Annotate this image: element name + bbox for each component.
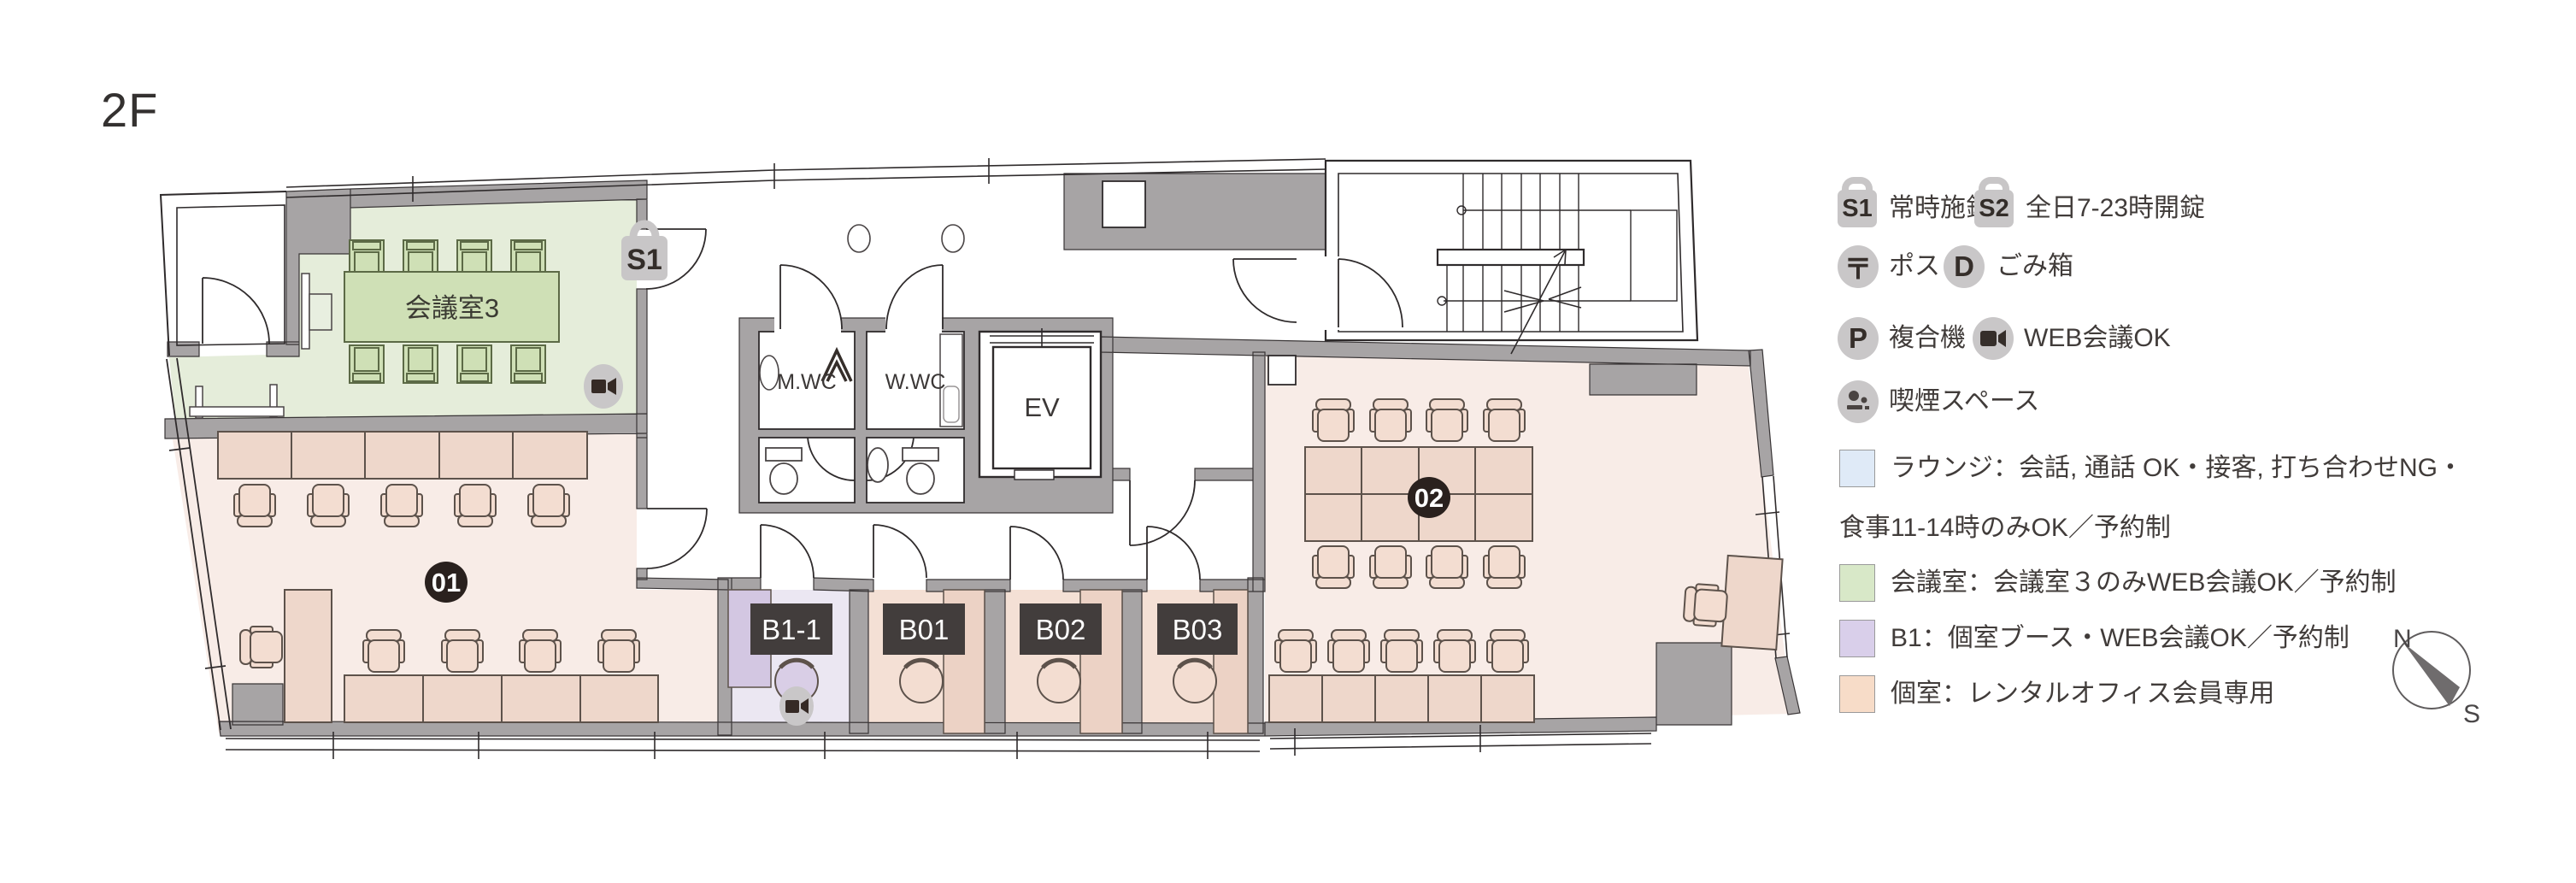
compass: N S (2378, 611, 2532, 731)
wwc-label: W.WC (885, 370, 946, 394)
compass-n: N (2393, 625, 2412, 653)
booth-b01-label: B01 (899, 614, 950, 645)
room01-badge: 01 (425, 562, 468, 603)
legend-zone-private: 個室：レンタルオフィス会員専用 (1839, 674, 2274, 715)
stairwell (1326, 161, 1697, 354)
elevator: EV (990, 328, 1094, 480)
corridor-basin-1 (848, 225, 870, 252)
legend-zone-meeting: 会議室：会議室３のみWEB会議OK／予約制 (1839, 562, 2397, 603)
lock-icon: S1 (1838, 190, 1877, 227)
legend-lock-s2: S2 全日7-23時開錠 (1974, 176, 2205, 229)
vestibule (161, 191, 286, 356)
web-camera-icon (584, 364, 623, 409)
compass-needle (2403, 643, 2460, 706)
trash-icon: D (1944, 245, 1985, 288)
meeting-whiteboard (302, 274, 309, 349)
room01-door (647, 509, 707, 568)
floor-plan: 会議室3 S1 01 (0, 0, 1829, 883)
room02-badge: 02 (1408, 477, 1450, 518)
legend-zone-lounge: ラウンジ：会話, 通話 OK・接客, 打ち合わせNG・ (1839, 448, 2463, 489)
booth-b03-door (1147, 527, 1200, 580)
hall-door (1233, 259, 1297, 322)
post-icon: 〒 (1838, 245, 1879, 288)
mwc-label: M.WC (777, 370, 836, 394)
legend-webmeeting: WEB会議OK (1973, 317, 2171, 360)
room02-door (1130, 480, 1195, 545)
corridor-fixtures (848, 225, 964, 252)
booth-b01-door (873, 525, 926, 578)
svg-text:S1: S1 (626, 244, 662, 276)
pillar-box (1268, 356, 1296, 385)
svg-text:01: 01 (432, 568, 461, 597)
corridor-basin-2 (942, 225, 964, 252)
lock-icon: S2 (1974, 190, 2014, 227)
booth-b11-label: B1-1 (762, 614, 821, 645)
booth-b02-door (1010, 527, 1063, 580)
booth-b11-door (761, 525, 814, 578)
legend-zone-lounge-2: 食事11-14時のみOK／予約制 (1839, 508, 2171, 549)
duct-box (1103, 181, 1145, 227)
meeting-room-label: 会議室3 (405, 293, 499, 323)
legend-lock-s1: S1 常時施錠 (1838, 176, 1991, 229)
printer-icon: P (1838, 317, 1879, 360)
vestibule-door (203, 278, 269, 344)
booth-b02-label: B02 (1036, 614, 1086, 645)
smoking-icon (1838, 380, 1879, 423)
legend-smoking: 喫煙スペース (1838, 380, 2039, 423)
ev-label: EV (1024, 392, 1060, 422)
legend-printer: P 複合機 (1838, 317, 1966, 360)
meeting-monitor (309, 294, 332, 330)
booth-b03-label: B03 (1173, 614, 1223, 645)
compass-s: S (2463, 700, 2480, 728)
legend-zone-booth: B1：個室ブース・WEB会議OK／予約制 (1839, 618, 2350, 659)
web-camera-icon (1973, 317, 2014, 360)
legend-trash: D ごみ箱 (1944, 245, 2073, 288)
booth-camera-icon (779, 686, 814, 726)
svg-text:02: 02 (1414, 483, 1444, 513)
